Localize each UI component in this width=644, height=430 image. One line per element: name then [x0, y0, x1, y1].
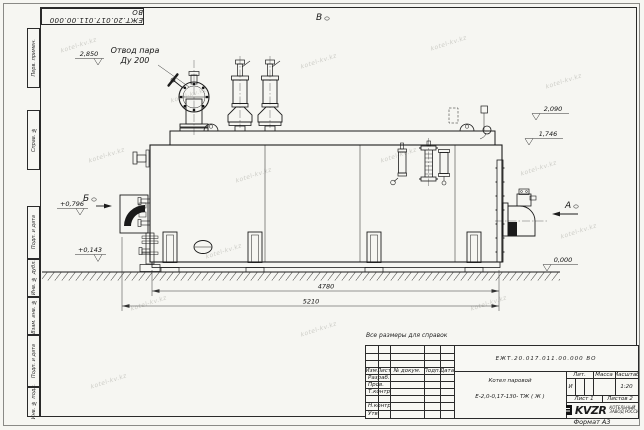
level-gauge-3 [439, 150, 450, 186]
svg-text:0,000: 0,000 [554, 256, 573, 264]
elevation-ground: 0,000 [543, 256, 578, 271]
row-utv: Утв. [366, 410, 390, 418]
elevation-0796: +0,796 [57, 200, 88, 215]
drawing-designation: ЕЖТ.20.017.011.00.000 ВО [454, 346, 638, 371]
margin-stamp-label: Подп. и дата [31, 344, 37, 378]
margin-stamp-podp-data-1: Подп. и дата [27, 206, 40, 259]
company-name-line2: ЗАВОД РОССИИ [609, 410, 638, 415]
massa-value [593, 378, 615, 395]
margin-stamp-label: Взам. инв. № [31, 299, 37, 334]
drawing-sheet: kotel-kv.kz kotel-kv.kz kotel-kv.kz kote… [0, 0, 644, 430]
svg-text:+0,796: +0,796 [60, 200, 84, 208]
ground-line [42, 272, 560, 281]
svg-text:1,746: 1,746 [539, 130, 558, 138]
row-prov: Пров. [366, 381, 390, 388]
masshtab-header: Масштаб [615, 371, 638, 378]
margin-stamp-label: Справ. № [31, 127, 37, 152]
format-label: Формат А3 [548, 418, 636, 426]
manhole [194, 241, 212, 254]
dimension-4780: 4780 [152, 283, 499, 293]
col-header-izm: Изм. [366, 367, 378, 374]
col-header-dokum: № докум. [390, 367, 424, 374]
row-tkontr: Т.контр. [366, 388, 390, 395]
elevation-1746: 1,746 [525, 130, 563, 145]
svg-text:+0,143: +0,143 [78, 246, 102, 254]
margin-stamp-sprav-no: Справ. № [27, 110, 40, 170]
svg-text:4780: 4780 [318, 283, 335, 291]
lit-header: Лит. [566, 371, 593, 378]
svg-text:В: В [316, 13, 322, 23]
title-block: Изм. Лист № докум. Подп. Дата Разраб. Пр… [365, 345, 639, 419]
svg-text:А: А [564, 201, 571, 211]
svg-text:Отвод пара: Отвод пара [111, 46, 160, 55]
elevation-0143: +0,143 [75, 246, 106, 262]
svg-text:2,090: 2,090 [544, 105, 563, 113]
lifting-lugs [204, 106, 491, 139]
smoke-box [120, 195, 160, 272]
left-wall-fittings [133, 150, 150, 255]
margin-stamp-vzam-inv: Взам. инв. № [27, 297, 40, 335]
svg-text:2,850: 2,850 [80, 50, 99, 58]
lit-value: И [566, 378, 575, 395]
callout-steam-outlet: Отвод пара Ду 200 [111, 46, 189, 87]
elevation-2090: 2,090 [532, 105, 569, 120]
company-logo-text: KVZR [575, 404, 606, 417]
svg-text:5210: 5210 [303, 298, 320, 306]
margin-stamp-inv-podl: Инв. № подл. [27, 387, 40, 417]
margin-stamp-label: Инв. № дубл. [31, 260, 37, 295]
sheet-number: Лист 1 [566, 395, 602, 402]
margin-stamp-perv-primen: Перв. примен. [27, 28, 40, 88]
margin-stamp-label: Подп. и дата [31, 215, 37, 249]
level-gauge-1 [391, 143, 407, 185]
elevation-steam: 2,850 [75, 50, 104, 65]
product-name: Котел паровой [454, 373, 566, 389]
col-header-podp: Подп. [424, 367, 440, 374]
col-header-data: Дата [440, 367, 454, 374]
margin-stamp-podp-data-2: Подп. и дата [27, 335, 40, 387]
view-arrow-a: А [552, 201, 578, 216]
burner [503, 189, 536, 236]
row-nkontr: Н.контр. [366, 402, 390, 410]
margin-stamp-label: Инв. № подл. [31, 384, 37, 419]
col-header-list: Лист [378, 367, 390, 374]
masshtab-value: 1:20 [615, 378, 638, 395]
massa-header: Масса [593, 371, 615, 378]
row-razrab: Разраб. [366, 374, 390, 381]
dimension-5210: 5210 [122, 298, 499, 308]
company-logo-icon [566, 405, 572, 415]
svg-text:Ду 200: Ду 200 [120, 56, 150, 65]
sheets-total: Листов 2 [602, 395, 638, 402]
view-label-v: В [316, 13, 329, 23]
margin-stamp-label: Перв. примен. [31, 39, 37, 77]
reference-note: Все размеры для справок [366, 332, 447, 339]
product-type: Е-2,0-0,17-130- ТЖ ( Ж ) [454, 389, 566, 405]
view-arrow-b: Б [83, 194, 112, 208]
boiler-drawing: В Б А Отвод пара Ду 200 2,850 2, [40, 7, 637, 345]
company-cell: KVZR КОТЕЛЬНЫЙ ЗАВОД РОССИИ [566, 402, 638, 418]
steam-outlet-valve [169, 72, 209, 132]
margin-stamp-inv-dubl: Инв. № дубл. [27, 259, 40, 297]
